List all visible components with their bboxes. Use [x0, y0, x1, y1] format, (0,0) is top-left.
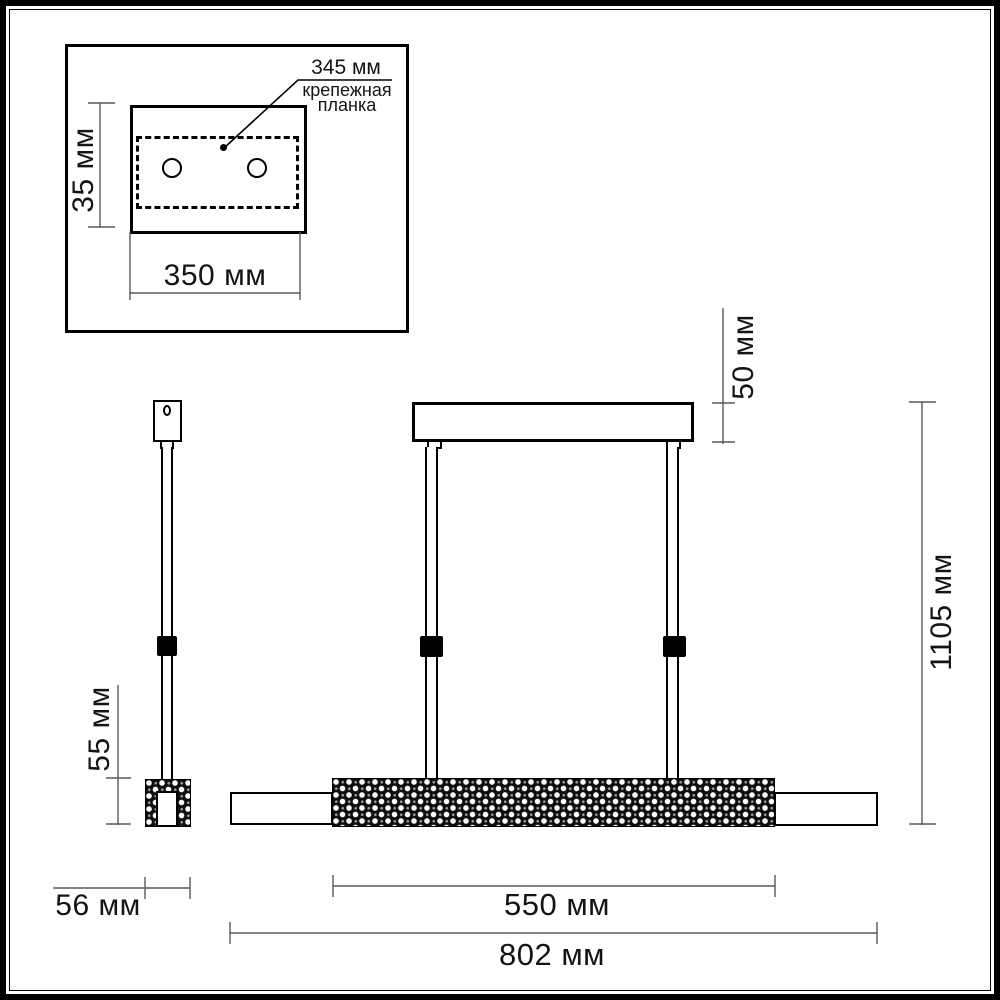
front-rod-connector-right [663, 636, 686, 657]
screw-hole-right [247, 158, 267, 178]
dim-body-height: 55 мм [83, 686, 117, 771]
front-rod-left [425, 447, 438, 779]
front-rod-connector-left [420, 636, 443, 657]
leader-dot [220, 144, 227, 151]
dimension-drawing: 345 мм крепежная планка 35 мм 350 мм 55 … [0, 0, 1000, 1000]
lamp-bar-crystal-section [332, 778, 775, 827]
side-lamp-end-inner [156, 791, 178, 827]
dim-plate-width: 350 мм [164, 259, 267, 293]
mounting-plate-dashed-outline [136, 136, 299, 209]
callout-plate-name: крепежная планка [302, 83, 391, 113]
callout-plate-length: 345 мм [311, 56, 381, 80]
lamp-bar-left-cap [230, 792, 333, 825]
callout-plate-name-line2: планка [302, 98, 391, 113]
dim-body-width: 56 мм [55, 889, 140, 923]
screw-hole-left [162, 158, 182, 178]
front-rod-right [666, 447, 679, 779]
side-suspension-rod [161, 447, 173, 780]
dim-crystal-length: 550 мм [504, 887, 610, 923]
dim-overall-length: 802 мм [499, 937, 605, 973]
front-canopy [412, 402, 694, 442]
lamp-bar-right-cap [774, 792, 878, 826]
side-rod-connector [157, 636, 177, 656]
dim-overall-height: 1105 мм [925, 553, 959, 671]
dim-canopy-height: 50 мм [727, 314, 761, 399]
dim-plate-height: 35 мм [67, 127, 101, 212]
side-canopy-hole [163, 405, 171, 416]
